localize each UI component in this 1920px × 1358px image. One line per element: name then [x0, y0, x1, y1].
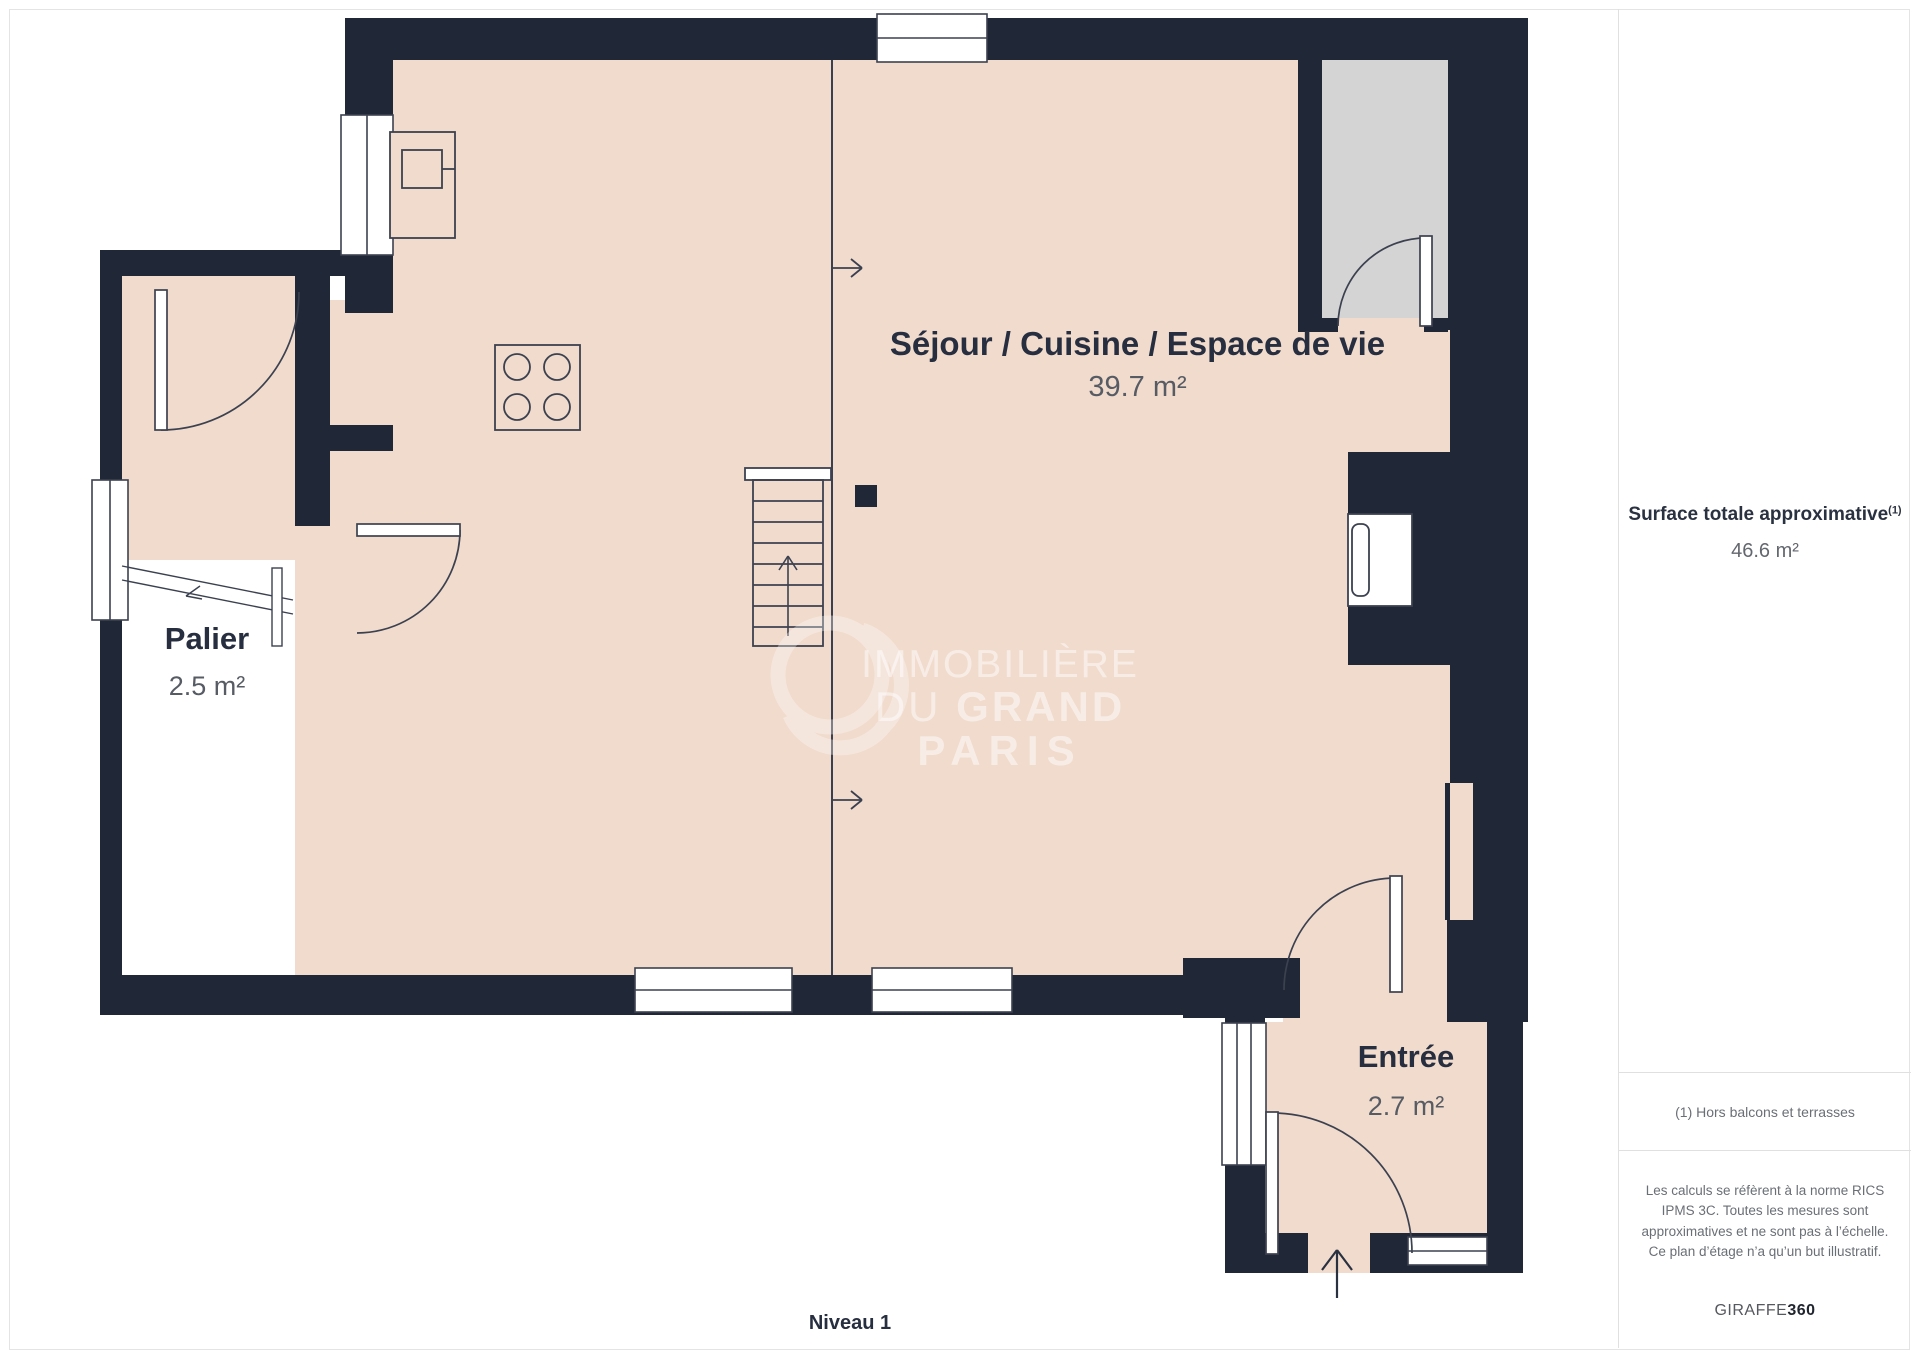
surface-total-block: Surface totale approximative(1) 46.6 m² — [1619, 504, 1911, 563]
room-label-entree: Entrée — [1300, 1040, 1512, 1074]
watermark-line3: PARIS — [845, 730, 1155, 772]
window-top-icon — [877, 14, 987, 62]
floor-plan-page: IMMOBILIÈRE DU GRAND PARIS Séjour / Cuis… — [0, 0, 1920, 1358]
window-left-lower-icon — [92, 480, 128, 620]
watermark-line1: IMMOBILIÈRE — [845, 645, 1155, 684]
brand-name: GIRAFFE — [1714, 1302, 1787, 1319]
room-label-palier: Palier — [118, 622, 296, 656]
wall-niche-fixture-icon — [1348, 514, 1412, 606]
room-area-sejour: 39.7 m² — [855, 372, 1420, 404]
brand-logo: GIRAFFE360 — [1619, 1302, 1911, 1320]
window-bottom-left-icon — [635, 968, 792, 1012]
surface-total-value: 46.6 m² — [1619, 540, 1911, 563]
window-entree-icon — [1222, 1023, 1266, 1165]
brand-suffix: 360 — [1787, 1302, 1815, 1319]
floor-plan-area: IMMOBILIÈRE DU GRAND PARIS Séjour / Cuis… — [0, 0, 1618, 1358]
info-sidebar: Surface totale approximative(1) 46.6 m² … — [1618, 9, 1911, 1348]
surface-total-label: Surface totale approximative — [1628, 504, 1888, 525]
window-left-upper-icon — [341, 115, 393, 255]
room-area-palier: 2.5 m² — [118, 672, 296, 702]
kitchen-sink-unit-icon — [390, 132, 455, 238]
surface-total-superscript: (1) — [1888, 505, 1901, 517]
room-area-entree: 2.7 m² — [1300, 1092, 1512, 1122]
watermark-text: IMMOBILIÈRE DU GRAND PARIS — [845, 645, 1155, 772]
window-bottom-right-icon — [872, 968, 1012, 1012]
level-label: Niveau 1 — [760, 1312, 940, 1335]
room-label-sejour: Séjour / Cuisine / Espace de vie — [855, 326, 1420, 362]
disclaimer-text: Les calculs se réfèrent à la norme RICS … — [1633, 1181, 1897, 1262]
structural-column — [855, 485, 877, 507]
entry-threshold-icon — [1408, 1237, 1487, 1265]
footnote-box: (1) Hors balcons et terrasses — [1619, 1072, 1911, 1151]
watermark-line2: DU GRAND — [845, 686, 1155, 728]
footnote-text: (1) Hors balcons et terrasses — [1675, 1104, 1855, 1120]
